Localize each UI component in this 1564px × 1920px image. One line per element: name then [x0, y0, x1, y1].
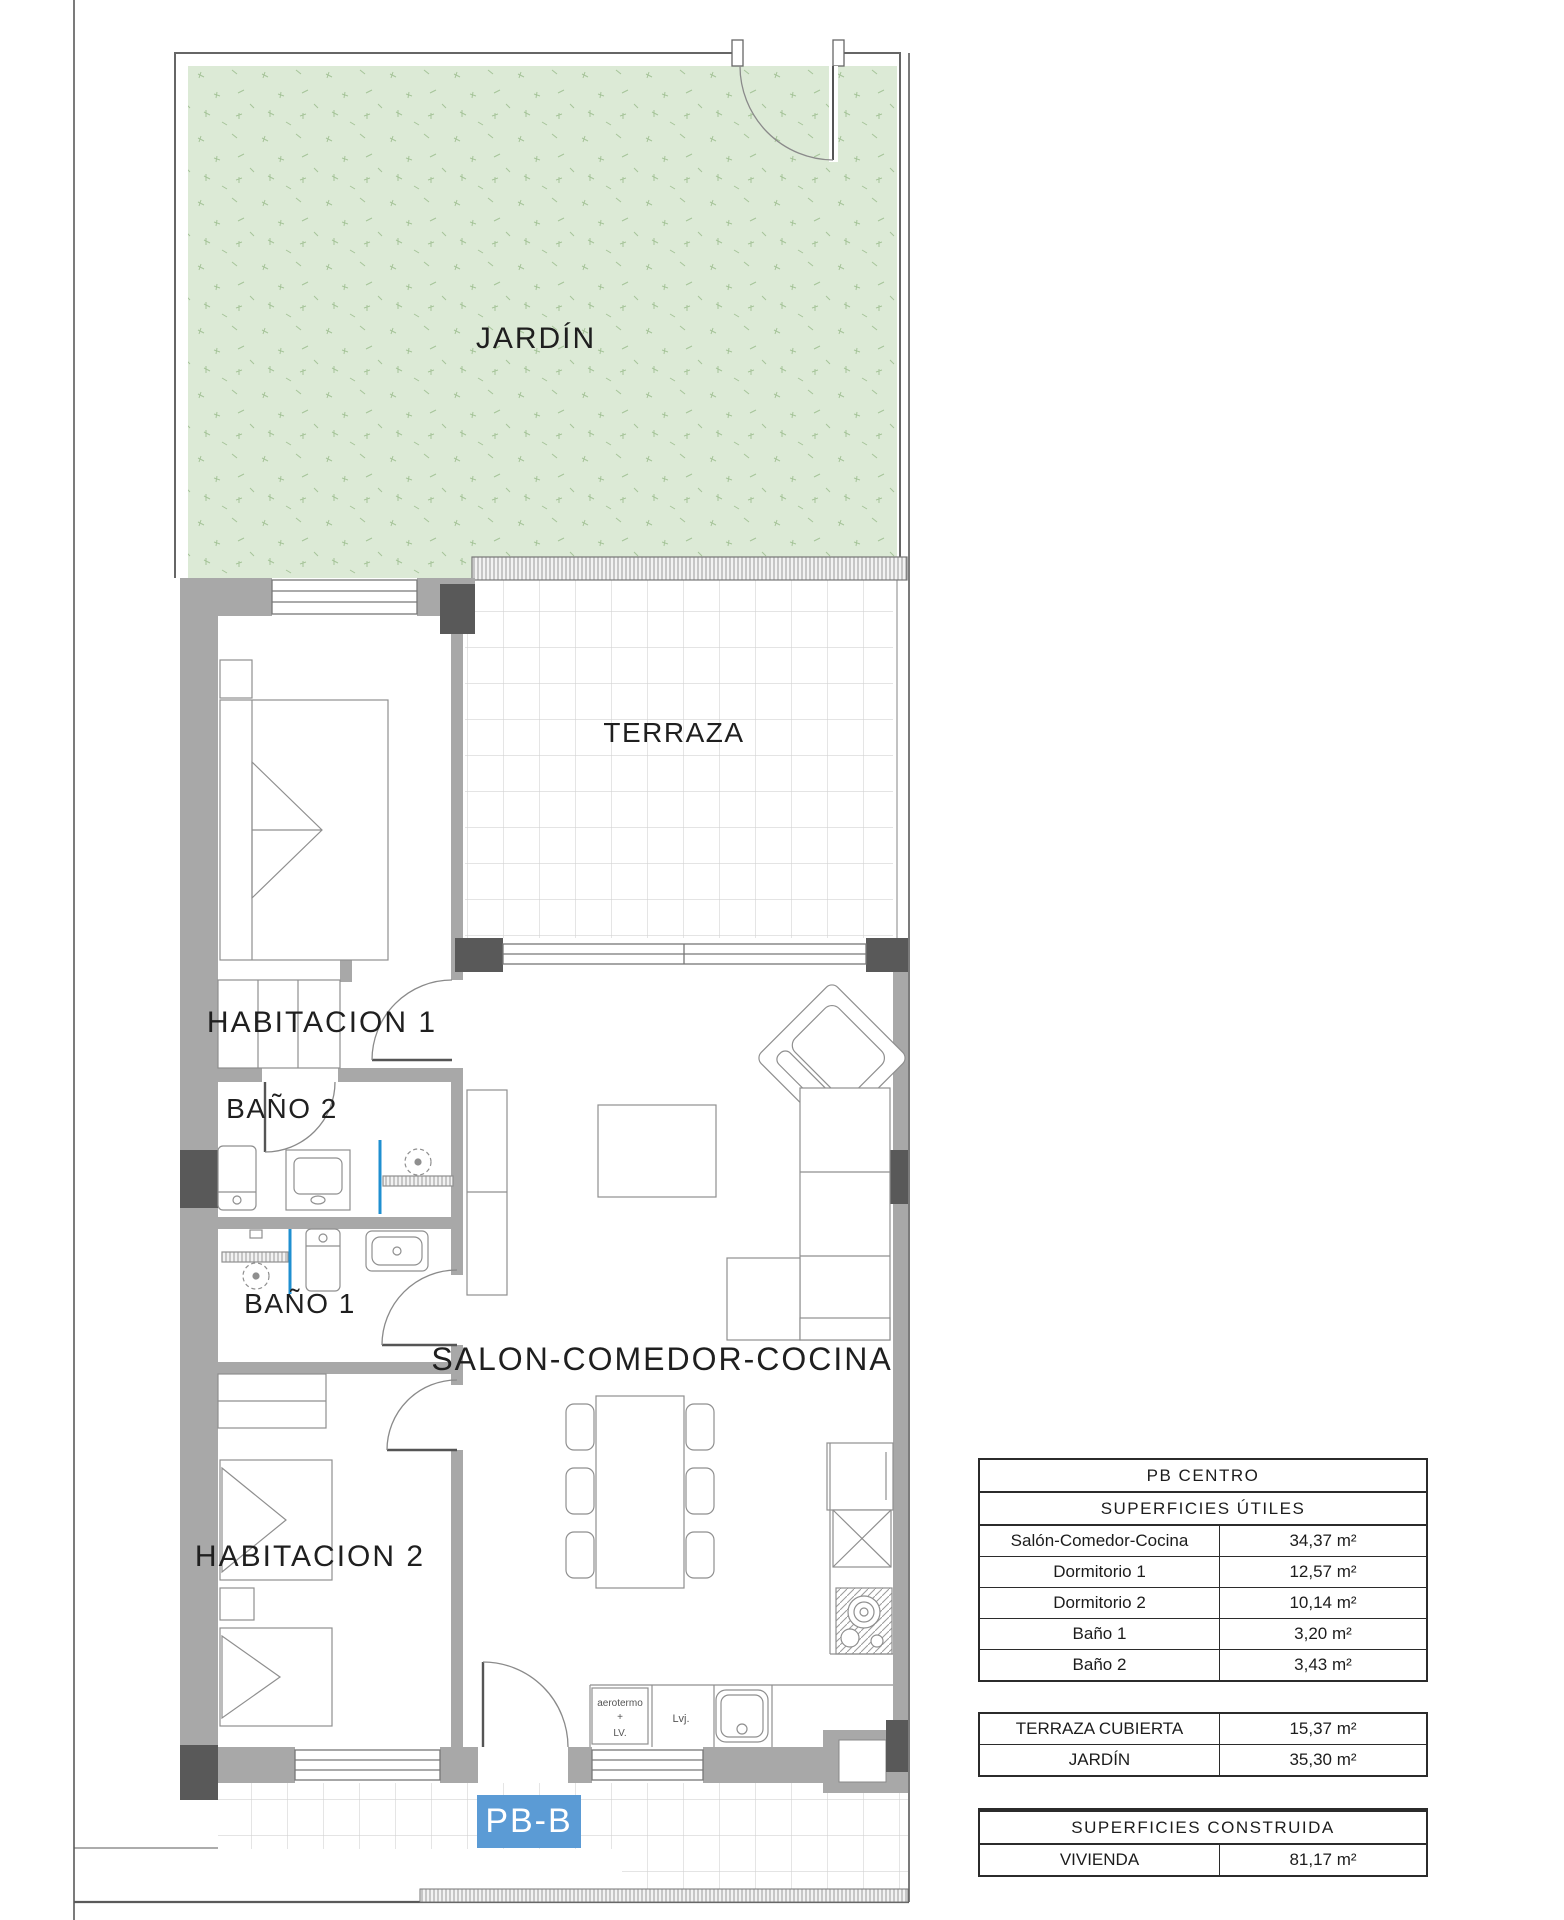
- living-sliding-door: [503, 944, 866, 964]
- useful-surfaces-table: PB CENTRO SUPERFICIES ÚTILES Salón-Comed…: [978, 1458, 1428, 1682]
- garden-label: JARDÍN: [476, 322, 596, 355]
- bedroom1-label: HABITACION 1: [207, 1006, 437, 1039]
- row-value: 3,20 m²: [1220, 1619, 1426, 1649]
- table-row: Dormitorio 1 12,57 m²: [980, 1557, 1426, 1588]
- sofa: [727, 1088, 890, 1340]
- row-label: Salón-Comedor-Cocina: [980, 1526, 1220, 1556]
- row-value: 10,14 m²: [1220, 1588, 1426, 1618]
- row-value: 12,57 m²: [1220, 1557, 1426, 1587]
- bath1-fixtures: [222, 1229, 428, 1294]
- terrace-parapet: [472, 557, 907, 580]
- table-row: VIVIENDA 81,17 m²: [980, 1845, 1426, 1875]
- aerotermo-label-line1: aerotermo: [597, 1698, 643, 1709]
- table-row: Dormitorio 2 10,14 m²: [980, 1588, 1426, 1619]
- row-label: TERRAZA CUBIERTA: [980, 1714, 1220, 1744]
- row-value: 81,17 m²: [1220, 1845, 1426, 1875]
- table-title: PB CENTRO: [980, 1460, 1426, 1493]
- table-row: Baño 2 3,43 m²: [980, 1650, 1426, 1680]
- bedroom2-door: [387, 1380, 457, 1450]
- living-label: SALON-COMEDOR-COCINA: [431, 1341, 892, 1377]
- floorplan-page: JARDÍN TERRAZA HABITACION 1 BAÑO 2 BAÑO …: [0, 0, 1564, 1920]
- table-row: Baño 1 3,20 m²: [980, 1619, 1426, 1650]
- bath2-fixtures: [218, 1140, 453, 1214]
- row-label: Dormitorio 1: [980, 1557, 1220, 1587]
- dishwasher-label: Lvj.: [672, 1713, 689, 1725]
- entrance-door: [483, 1662, 568, 1747]
- row-label: Dormitorio 2: [980, 1588, 1220, 1618]
- row-value: 15,37 m²: [1220, 1714, 1426, 1744]
- bedroom2-window: [295, 1750, 440, 1780]
- garden-area: [175, 40, 900, 578]
- table-title: SUPERFICIES CONSTRUIDA: [980, 1812, 1426, 1845]
- bath2-label: BAÑO 2: [226, 1093, 338, 1124]
- entry-niche: [839, 1740, 886, 1782]
- terrace-label: TERRAZA: [603, 717, 744, 748]
- area-tables: PB CENTRO SUPERFICIES ÚTILES Salón-Comed…: [978, 1458, 1428, 1877]
- exterior-surfaces-table: TERRAZA CUBIERTA 15,37 m² JARDÍN 35,30 m…: [978, 1712, 1428, 1777]
- aerotermo-label-line2: +: [617, 1712, 623, 1723]
- table-row: JARDÍN 35,30 m²: [980, 1745, 1426, 1775]
- row-label: JARDÍN: [980, 1745, 1220, 1775]
- row-value: 35,30 m²: [1220, 1745, 1426, 1775]
- table-row: TERRAZA CUBIERTA 15,37 m²: [980, 1714, 1426, 1745]
- bedroom2-label: HABITACION 2: [195, 1540, 425, 1573]
- kitchen-window: [592, 1750, 703, 1780]
- aerotermo-label-line3: LV.: [613, 1728, 626, 1739]
- table-row: Salón-Comedor-Cocina 34,37 m²: [980, 1526, 1426, 1557]
- bath1-door: [382, 1270, 457, 1345]
- row-label: Baño 1: [980, 1619, 1220, 1649]
- bath1-label: BAÑO 1: [244, 1288, 356, 1319]
- row-label: Baño 2: [980, 1650, 1220, 1680]
- row-label: VIVIENDA: [980, 1845, 1220, 1875]
- table-subtitle: SUPERFICIES ÚTILES: [980, 1493, 1426, 1526]
- row-value: 3,43 m²: [1220, 1650, 1426, 1680]
- built-surfaces-table: SUPERFICIES CONSTRUIDA VIVIENDA 81,17 m²: [978, 1808, 1428, 1877]
- row-value: 34,37 m²: [1220, 1526, 1426, 1556]
- bedroom1-window: [272, 580, 417, 614]
- dining-set: [566, 1396, 714, 1588]
- unit-badge: PB-B: [477, 1795, 581, 1848]
